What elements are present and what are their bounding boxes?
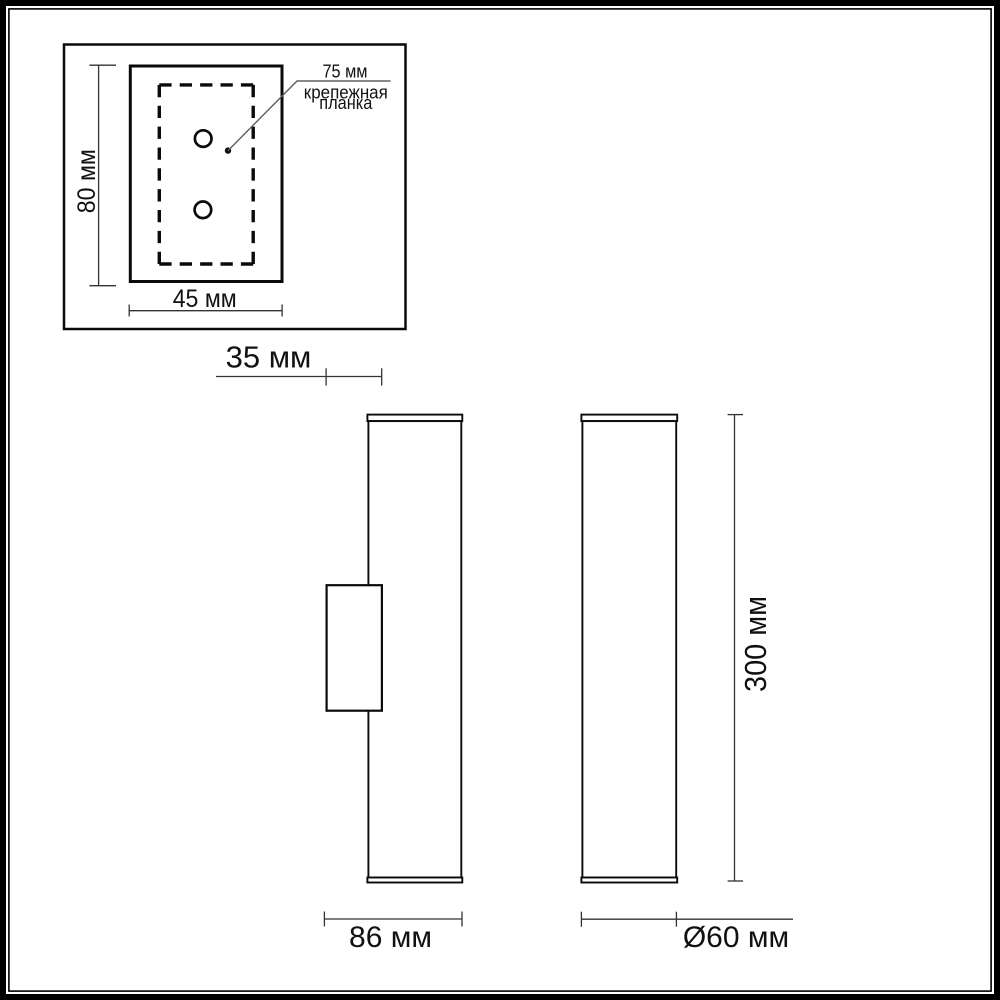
svg-text:35 мм: 35 мм [226, 340, 312, 375]
svg-text:80 мм: 80 мм [73, 149, 101, 213]
svg-text:86 мм: 86 мм [349, 921, 432, 954]
svg-text:45 мм: 45 мм [173, 285, 237, 313]
svg-text:Ø60 мм: Ø60 мм [683, 921, 789, 954]
svg-text:75 мм: 75 мм [323, 60, 368, 81]
svg-text:300 мм: 300 мм [738, 596, 773, 692]
svg-text:планка: планка [319, 92, 373, 113]
